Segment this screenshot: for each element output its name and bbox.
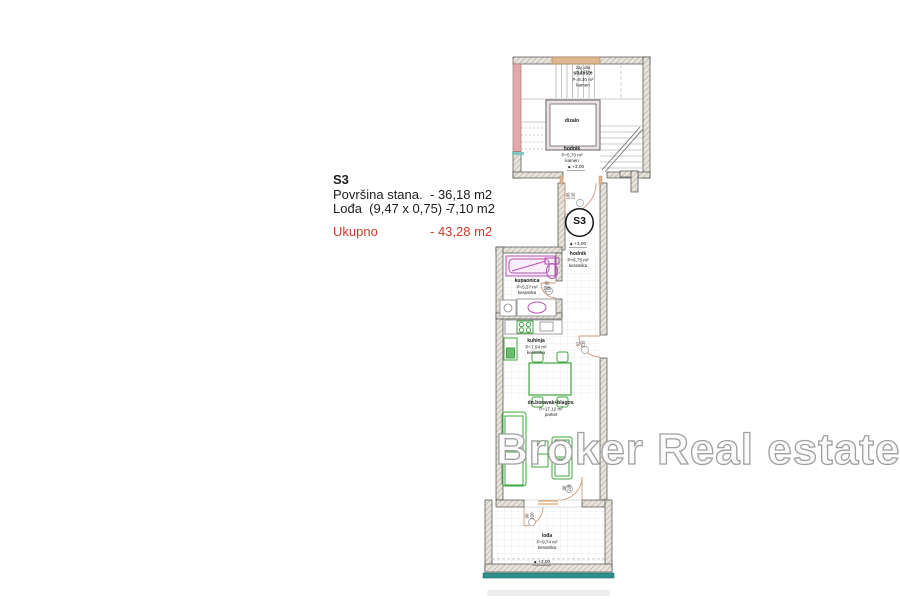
entrance-door xyxy=(565,183,596,214)
total-value: - 43,28 m2 xyxy=(430,224,492,239)
loggia-window xyxy=(538,501,558,504)
floorplan-page: S3 Površina stana. - 36,18 m2 Lođa (9,47… xyxy=(0,0,900,600)
loggia-row-label: Lođa (9,47 x 0,75) - xyxy=(333,201,450,216)
elevator-shaft xyxy=(546,100,600,150)
unit-title: S3 xyxy=(333,172,349,187)
floor-plan-drawing xyxy=(0,0,900,600)
total-label: Ukupno xyxy=(333,224,378,239)
area-row-label: Površina stana. xyxy=(333,187,423,202)
washing-machine xyxy=(500,300,516,316)
loggia-row-value: 7,10 m2 xyxy=(448,201,495,216)
area-row-value: - 36,18 m2 xyxy=(430,187,492,202)
broker-watermark: Broker Real estate xyxy=(496,425,900,475)
